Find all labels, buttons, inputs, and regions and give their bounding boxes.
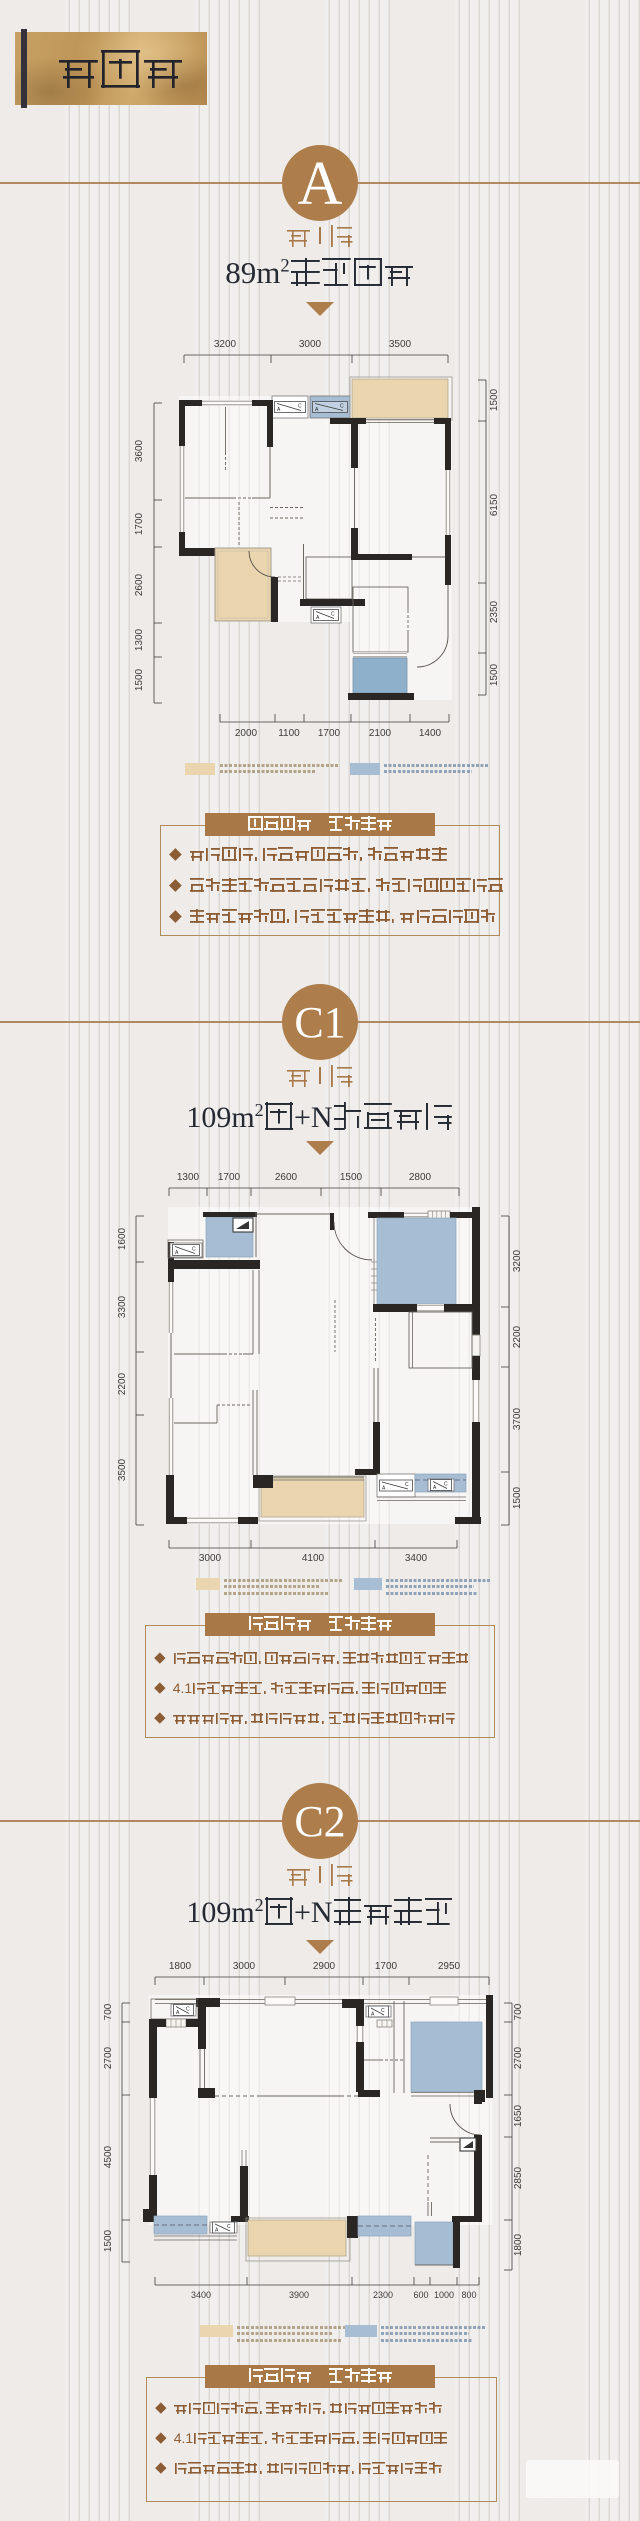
svg-text:C: C	[227, 2224, 231, 2230]
svg-text:2700: 2700	[513, 2046, 524, 2069]
svg-text:1100: 1100	[278, 728, 300, 739]
svg-text:1700: 1700	[318, 728, 341, 739]
svg-text:2100: 2100	[369, 728, 392, 739]
svg-text:4100: 4100	[302, 1553, 325, 1564]
svg-text:1500: 1500	[489, 388, 500, 411]
svg-text:C: C	[298, 404, 302, 410]
svg-text:2800: 2800	[409, 1172, 432, 1183]
svg-text:2200: 2200	[117, 1372, 128, 1395]
svg-text:2350: 2350	[489, 600, 500, 623]
svg-text:C: C	[340, 404, 344, 410]
svg-text:1500: 1500	[512, 1486, 523, 1509]
svg-text:3500: 3500	[389, 339, 412, 350]
svg-text:C: C	[405, 1482, 409, 1488]
svg-text:2200: 2200	[512, 1325, 523, 1348]
svg-text:1650: 1650	[513, 2104, 524, 2127]
svg-text:1500: 1500	[489, 663, 500, 686]
svg-text:2900: 2900	[313, 1961, 336, 1972]
svg-text:3600: 3600	[135, 439, 145, 462]
svg-text:600: 600	[413, 2290, 428, 2300]
svg-text:3000: 3000	[233, 1961, 256, 1972]
svg-text:2950: 2950	[438, 1961, 461, 1972]
svg-text:1400: 1400	[419, 728, 442, 739]
svg-text:3900: 3900	[289, 2290, 309, 2300]
svg-text:3000: 3000	[299, 339, 322, 350]
svg-text:1500: 1500	[135, 668, 145, 691]
svg-text:C: C	[186, 2007, 190, 2013]
svg-text:2600: 2600	[275, 1172, 298, 1183]
svg-text:700: 700	[103, 2003, 114, 2020]
svg-text:6150: 6150	[489, 493, 500, 516]
svg-text:1300: 1300	[177, 1172, 200, 1183]
svg-text:1300: 1300	[135, 628, 145, 651]
svg-text:C: C	[444, 1482, 448, 1488]
svg-text:3000: 3000	[199, 1553, 222, 1564]
svg-text:3400: 3400	[191, 2290, 211, 2300]
svg-text:3300: 3300	[117, 1295, 128, 1318]
svg-text:3700: 3700	[512, 1407, 523, 1430]
svg-text:3200: 3200	[512, 1249, 523, 1272]
svg-text:1700: 1700	[218, 1172, 241, 1183]
svg-text:1700: 1700	[135, 512, 145, 535]
svg-text:C: C	[381, 2008, 385, 2014]
svg-text:1500: 1500	[340, 1172, 363, 1183]
svg-text:4500: 4500	[103, 2145, 114, 2168]
svg-text:1600: 1600	[117, 1227, 128, 1250]
svg-text:1000: 1000	[434, 2290, 454, 2300]
svg-text:C: C	[192, 1247, 196, 1253]
svg-text:3200: 3200	[214, 339, 237, 350]
svg-text:3500: 3500	[117, 1458, 128, 1481]
svg-text:2300: 2300	[373, 2290, 393, 2300]
svg-text:3400: 3400	[405, 1553, 428, 1564]
svg-text:1800: 1800	[169, 1961, 192, 1972]
svg-text:1500: 1500	[103, 2229, 114, 2252]
svg-text:2000: 2000	[235, 728, 258, 739]
svg-text:2850: 2850	[513, 2166, 524, 2189]
svg-text:2700: 2700	[103, 2046, 114, 2069]
svg-text:C: C	[331, 612, 335, 618]
svg-text:1800: 1800	[513, 2233, 524, 2256]
svg-text:800: 800	[461, 2290, 476, 2300]
svg-text:2600: 2600	[135, 573, 145, 596]
svg-text:1700: 1700	[375, 1961, 398, 1972]
svg-text:700: 700	[513, 2003, 524, 2020]
